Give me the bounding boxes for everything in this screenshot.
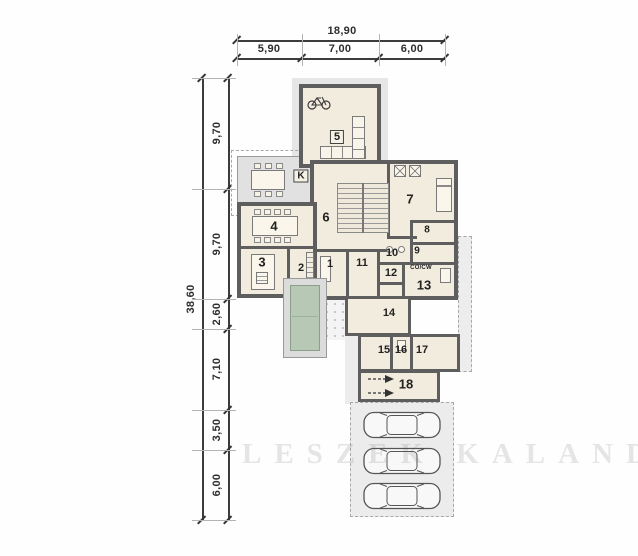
dim-extension	[445, 34, 446, 66]
bicycle-icon	[307, 94, 331, 110]
stair-rail	[362, 183, 364, 233]
dim-left-seg-5: 3,50	[211, 410, 223, 450]
dim-extension	[237, 34, 238, 66]
dim-extension	[192, 520, 236, 521]
dim-left-seg-2: 9,70	[211, 224, 223, 264]
room-label-2: 2	[298, 262, 304, 274]
chair	[264, 209, 271, 215]
dim-extension	[192, 78, 236, 79]
room-label-12: 12	[385, 267, 397, 279]
wardrobe-icon	[409, 165, 421, 177]
toilet	[398, 246, 405, 253]
room-label-18: 18	[399, 377, 413, 392]
dim-top-seg-1: 5,90	[247, 43, 291, 55]
dim-top-seg-3: 6,00	[390, 43, 434, 55]
dim-left-seg-6: 6,00	[211, 465, 223, 505]
chair	[284, 237, 291, 243]
boiler	[440, 268, 451, 283]
dim-line	[237, 58, 445, 60]
chair	[254, 209, 261, 215]
bed-pillow-line	[437, 185, 451, 187]
room-label-14: 14	[383, 307, 395, 319]
terrace-chair	[265, 191, 272, 197]
terrace-chair	[276, 163, 283, 169]
entrance-arrow-icon	[366, 374, 396, 384]
terrace-chair	[265, 163, 272, 169]
wall	[240, 246, 314, 249]
utility-label: CO/CW	[410, 265, 432, 271]
pool-lane-line	[292, 316, 318, 317]
room-label-15: 15	[378, 344, 390, 356]
car-icon	[362, 446, 442, 476]
room-14-block	[345, 296, 411, 336]
wardrobe-icon	[394, 165, 406, 177]
room-label-5: 5	[330, 130, 344, 144]
chair	[274, 237, 281, 243]
entrance-arrow-icon	[366, 388, 396, 398]
dim-extension	[192, 450, 236, 451]
room-label-3: 3	[258, 255, 265, 270]
dim-left-seg-3: 2,60	[211, 294, 223, 334]
dim-left-seg-4: 7,10	[211, 349, 223, 389]
dim-extension	[192, 189, 236, 190]
chair	[254, 237, 261, 243]
dim-line	[237, 40, 445, 42]
dim-top-total: 18,90	[320, 25, 364, 37]
side-strip	[458, 236, 472, 372]
wall	[410, 220, 413, 262]
room-label-9: 9	[414, 246, 420, 257]
wall	[410, 242, 457, 245]
chair	[264, 237, 271, 243]
room-label-11: 11	[356, 257, 368, 269]
fireplace-label: K	[293, 170, 308, 183]
chair	[284, 209, 291, 215]
wall	[377, 282, 405, 285]
wall	[390, 336, 393, 370]
room-label-17: 17	[416, 344, 428, 356]
storage-shelf	[352, 116, 365, 159]
terrace-chair	[254, 191, 261, 197]
chair	[274, 209, 281, 215]
room-label-13: 13	[417, 278, 431, 293]
car-icon	[362, 410, 442, 440]
room-label-16: 16	[395, 344, 407, 356]
room-label-7: 7	[406, 192, 413, 207]
car-icon	[362, 481, 442, 511]
pool-water	[290, 285, 320, 351]
terrace-chair	[276, 191, 283, 197]
wall	[410, 336, 413, 370]
dim-extension	[379, 34, 380, 66]
room-label-1: 1	[327, 258, 333, 270]
room-label-4: 4	[270, 219, 277, 234]
dim-extension	[302, 34, 303, 66]
cooktop	[256, 272, 268, 284]
wall	[346, 249, 349, 298]
wall	[377, 249, 380, 298]
room-label-6: 6	[322, 210, 329, 225]
room-label-10: 10	[386, 247, 398, 259]
wall	[402, 264, 405, 298]
dim-left-seg-1: 9,70	[211, 113, 223, 153]
wall	[410, 220, 455, 223]
rooms-15-17-block	[358, 334, 460, 372]
bed	[436, 178, 452, 212]
room-label-8: 8	[424, 225, 430, 236]
dim-top-seg-2: 7,00	[318, 43, 362, 55]
terrace-table	[251, 170, 285, 190]
floor-plan: 18,90 5,90 7,00 6,00 38,60 9,70 9,70 2,6…	[0, 0, 638, 556]
terrace-chair	[254, 163, 261, 169]
